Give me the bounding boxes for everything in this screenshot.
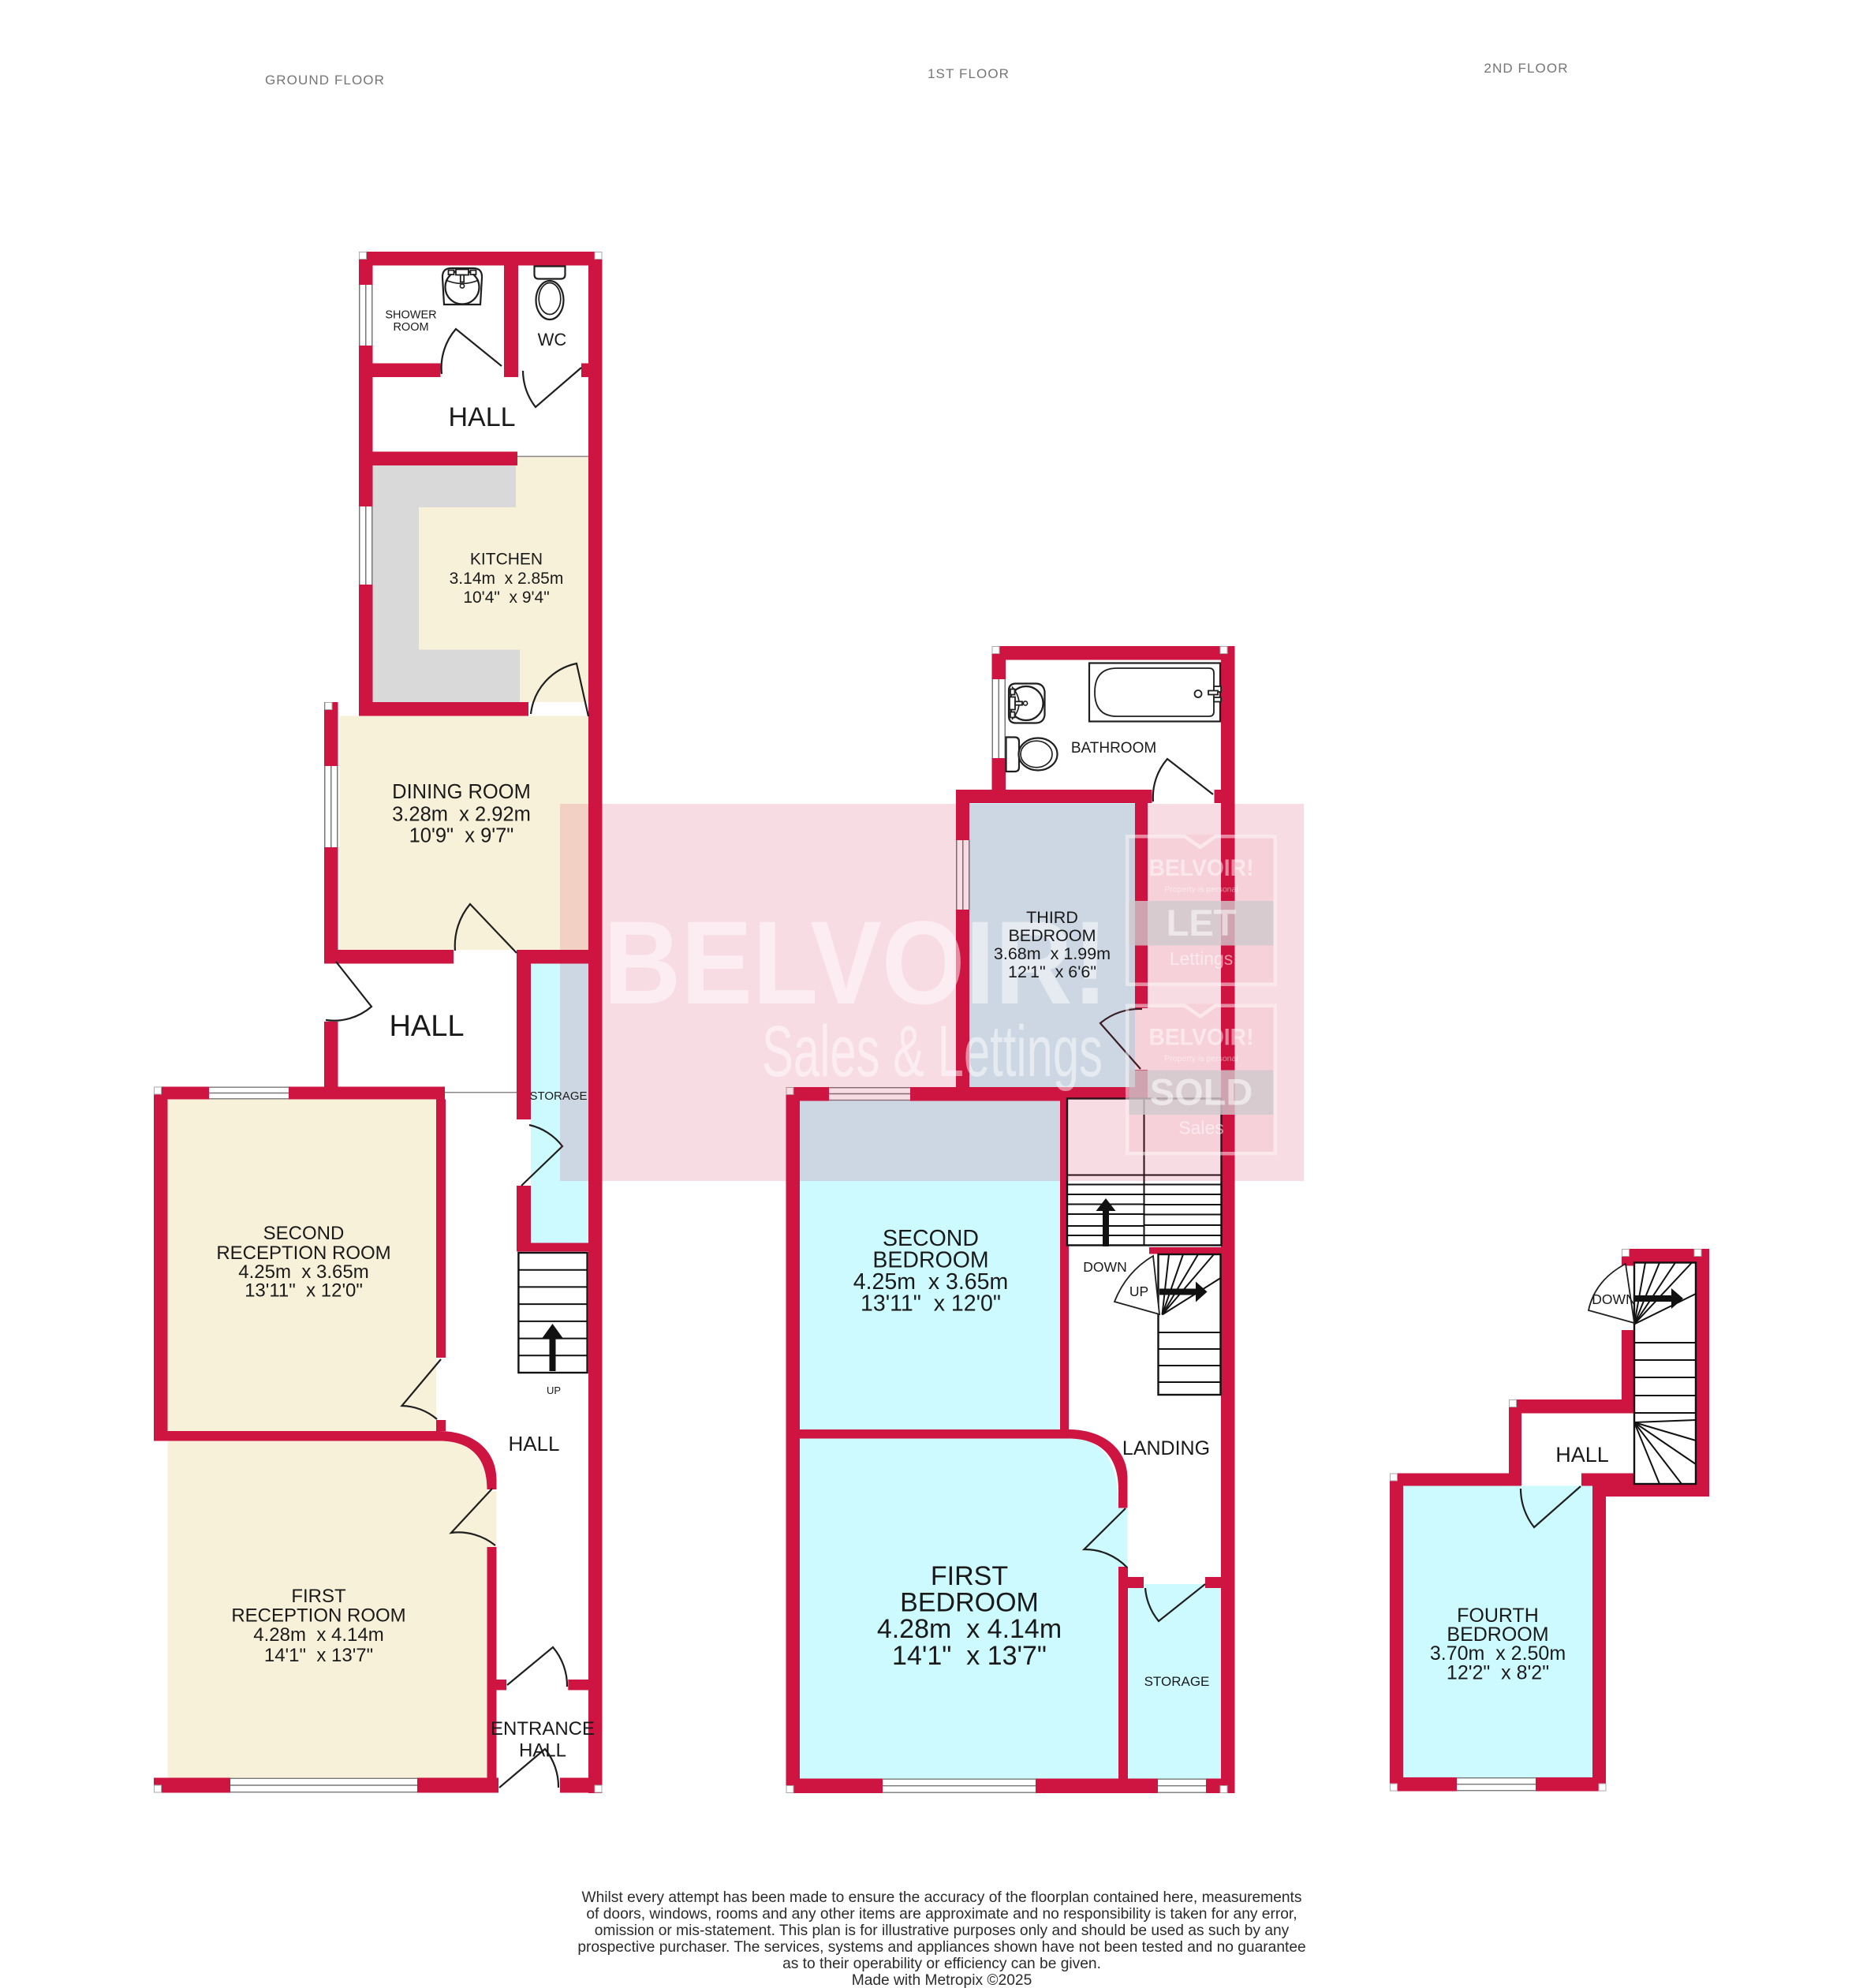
svg-text:Property is personal: Property is personal (1164, 1054, 1238, 1063)
svg-text:KITCHEN: KITCHEN (470, 551, 543, 569)
svg-text:Sales & Lettings: Sales & Lettings (762, 1011, 1103, 1092)
svg-text:omission or mis-statement. Thi: omission or mis-statement. This plan is … (595, 1923, 1290, 1939)
svg-text:3.28m x 2.92m: 3.28m x 2.92m (392, 804, 531, 826)
svg-text:FIRST: FIRST (931, 1561, 1008, 1591)
svg-text:14'1" x 13'7": 14'1" x 13'7" (892, 1641, 1047, 1671)
svg-text:HALL: HALL (508, 1432, 559, 1455)
svg-text:SOLD: SOLD (1150, 1071, 1253, 1113)
svg-text:HALL: HALL (1555, 1443, 1609, 1467)
svg-text:THIRD: THIRD (1026, 908, 1078, 927)
svg-text:UP: UP (547, 1384, 561, 1396)
svg-text:prospective purchaser. The ser: prospective purchaser. The services, sys… (577, 1939, 1305, 1956)
svg-text:STORAGE: STORAGE (1144, 1674, 1210, 1689)
svg-text:12'2" x 8'2": 12'2" x 8'2" (1447, 1662, 1549, 1684)
svg-text:3.68m x 1.99m: 3.68m x 1.99m (994, 944, 1111, 963)
svg-text:UP: UP (1129, 1284, 1148, 1299)
svg-text:Made with Metropix ©2025: Made with Metropix ©2025 (852, 1972, 1032, 1988)
svg-text:DOWN: DOWN (1592, 1291, 1635, 1307)
svg-text:RECEPTION ROOM: RECEPTION ROOM (216, 1242, 390, 1264)
svg-text:GROUND FLOOR: GROUND FLOOR (265, 73, 385, 88)
svg-text:10'4" x 9'4": 10'4" x 9'4" (463, 589, 549, 607)
svg-text:3.14m x 2.85m: 3.14m x 2.85m (450, 570, 564, 588)
svg-text:HALL: HALL (448, 402, 515, 432)
svg-text:BEDROOM: BEDROOM (1008, 926, 1096, 945)
svg-text:HALL: HALL (519, 1740, 566, 1762)
svg-text:HALL: HALL (389, 1010, 464, 1043)
svg-text:FIRST: FIRST (291, 1586, 346, 1607)
svg-text:13'11" x 12'0": 13'11" x 12'0" (245, 1280, 363, 1302)
svg-text:BEDROOM: BEDROOM (900, 1588, 1039, 1618)
svg-text:2ND FLOOR: 2ND FLOOR (1484, 61, 1568, 76)
svg-text:Lettings: Lettings (1170, 948, 1234, 969)
svg-text:SHOWER: SHOWER (385, 309, 436, 322)
svg-text:ENTRANCE: ENTRANCE (491, 1718, 595, 1739)
svg-text:SECOND: SECOND (263, 1223, 345, 1244)
svg-text:Sales: Sales (1178, 1118, 1224, 1138)
svg-text:13'11" x 12'0": 13'11" x 12'0" (861, 1291, 1001, 1317)
svg-text:LET: LET (1167, 902, 1237, 944)
svg-text:BELVOIR!: BELVOIR! (1149, 1025, 1254, 1051)
svg-text:10'9" x 9'7": 10'9" x 9'7" (409, 825, 514, 847)
svg-text:12'1" x 6'6": 12'1" x 6'6" (1008, 962, 1096, 981)
svg-text:ROOM: ROOM (393, 321, 428, 334)
svg-text:4.28m x 4.14m: 4.28m x 4.14m (253, 1624, 383, 1646)
svg-text:as to their operability or eff: as to their operability or efficiency ca… (782, 1956, 1101, 1972)
svg-text:STORAGE: STORAGE (529, 1089, 587, 1103)
svg-text:DOWN: DOWN (1083, 1259, 1126, 1275)
svg-text:DINING ROOM: DINING ROOM (392, 781, 531, 803)
svg-text:14'1" x 13'7": 14'1" x 13'7" (264, 1645, 373, 1666)
svg-text:WC: WC (538, 330, 567, 349)
svg-text:BELVOIR!: BELVOIR! (1149, 855, 1254, 881)
svg-text:BATHROOM: BATHROOM (1071, 740, 1156, 757)
svg-text:Whilst every attempt has been: Whilst every attempt has been made to en… (582, 1889, 1302, 1906)
svg-text:of doors, windows, rooms and a: of doors, windows, rooms and any other i… (586, 1906, 1297, 1923)
svg-text:LANDING: LANDING (1122, 1437, 1210, 1459)
svg-text:Property is personal: Property is personal (1164, 885, 1238, 895)
svg-text:4.28m x 4.14m: 4.28m x 4.14m (877, 1614, 1062, 1644)
svg-text:RECEPTION ROOM: RECEPTION ROOM (231, 1605, 405, 1627)
svg-text:1ST FLOOR: 1ST FLOOR (928, 66, 1010, 81)
